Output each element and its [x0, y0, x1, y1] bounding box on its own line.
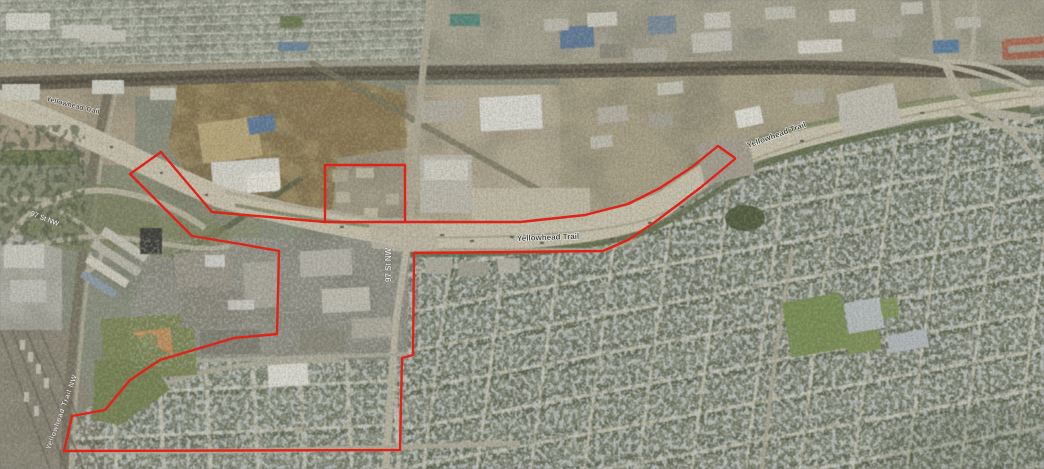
svg-text:97 St NW: 97 St NW [384, 247, 393, 282]
